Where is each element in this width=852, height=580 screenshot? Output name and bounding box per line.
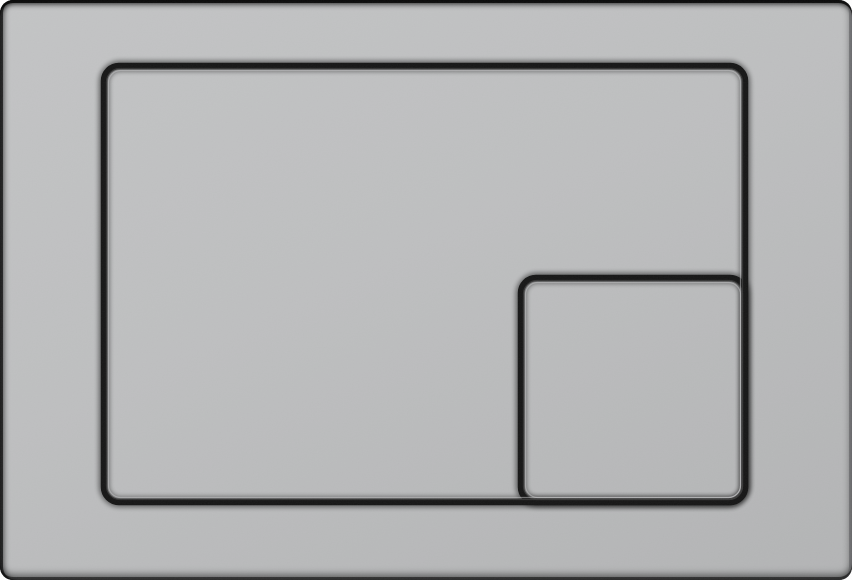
flush-plate [0, 0, 852, 580]
half-flush-button[interactable] [524, 281, 742, 499]
